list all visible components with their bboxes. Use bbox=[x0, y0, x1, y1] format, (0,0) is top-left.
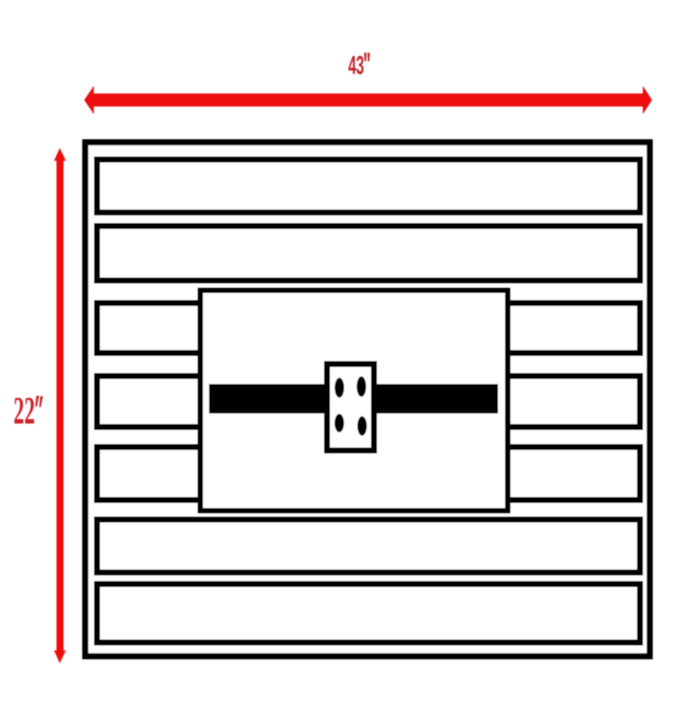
svg-text:43: 43 bbox=[348, 52, 364, 81]
svg-text:22: 22 bbox=[14, 389, 35, 432]
